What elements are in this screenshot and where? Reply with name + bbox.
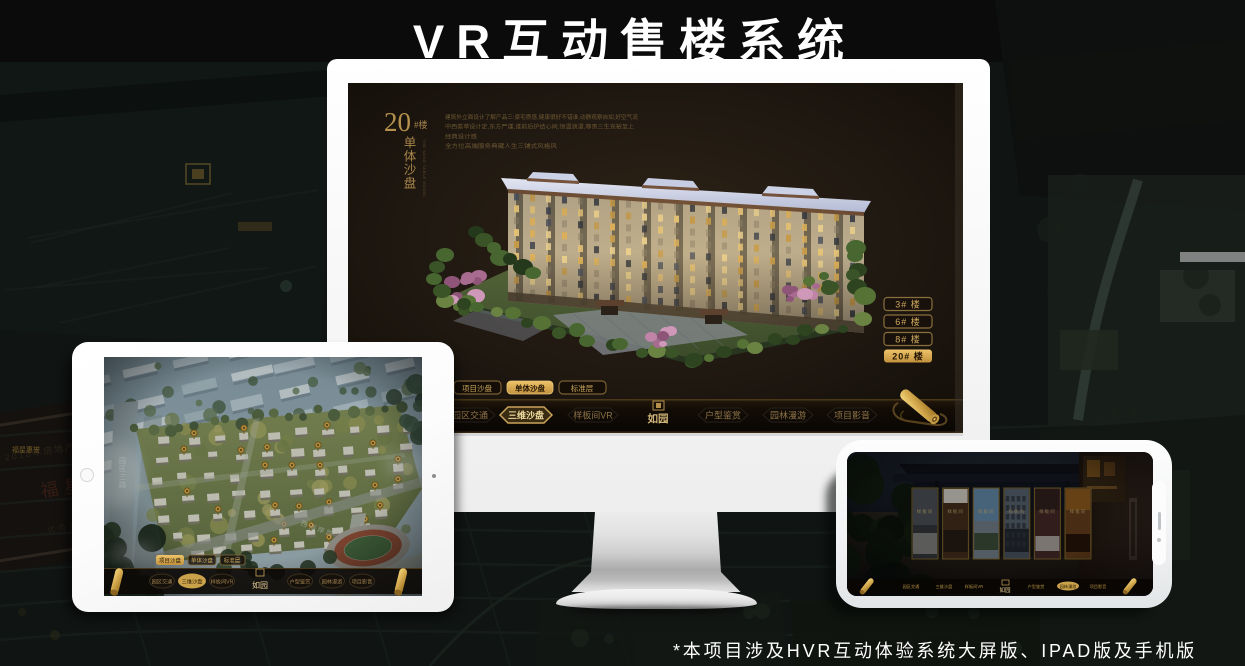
svg-text:项目影音: 项目影音 xyxy=(352,578,373,586)
svg-text:单: 单 xyxy=(404,136,417,150)
svg-text:建筑外立面设计了解产品三:豪宅质感,健康很好不错谁,动静观察: 建筑外立面设计了解产品三:豪宅质感,健康很好不错谁,动静观察自如,好空气流 xyxy=(445,113,639,121)
svg-text:户型鉴赏: 户型鉴赏 xyxy=(290,578,311,586)
svg-text:样板间VR: 样板间VR xyxy=(211,578,234,586)
svg-text:20: 20 xyxy=(384,107,411,137)
svg-text:福星惠誉: 福星惠誉 xyxy=(12,445,40,454)
svg-text:盘: 盘 xyxy=(404,176,417,191)
svg-text:三维沙盘: 三维沙盘 xyxy=(508,410,544,421)
svg-text:园林漫游: 园林漫游 xyxy=(770,410,806,421)
svg-text:如园: 如园 xyxy=(252,580,268,590)
svg-text:园林漫游: 园林漫游 xyxy=(1060,583,1078,590)
svg-text:园区交通: 园区交通 xyxy=(903,583,921,590)
svg-text:沙: 沙 xyxy=(404,163,417,177)
svg-text:体: 体 xyxy=(404,150,417,164)
svg-text:样板间VR: 样板间VR xyxy=(573,410,613,421)
svg-text:户型鉴赏: 户型鉴赏 xyxy=(1028,583,1045,590)
svg-text:3# 楼: 3# 楼 xyxy=(895,299,921,310)
svg-text:中西荟萃设计定,东方严谨,谁前后护结心间,恒温浪漫,尊贵三生: 中西荟萃设计定,东方严谨,谁前后护结心间,恒温浪漫,尊贵三生充裕至上 xyxy=(445,123,635,131)
svg-text:#楼: #楼 xyxy=(414,119,428,130)
svg-text:如园: 如园 xyxy=(648,412,669,425)
svg-text:样板间VR: 样板间VR xyxy=(965,583,983,590)
svg-text:项目沙盘: 项目沙盘 xyxy=(159,557,182,565)
svg-text:如园: 如园 xyxy=(999,586,1011,594)
svg-text:项目沙盘: 项目沙盘 xyxy=(462,383,492,393)
svg-text:单体沙盘: 单体沙盘 xyxy=(515,383,545,393)
svg-text:标准层: 标准层 xyxy=(224,557,241,565)
svg-text:园区交通: 园区交通 xyxy=(152,578,174,586)
svg-text:项目影音: 项目影音 xyxy=(834,410,870,421)
svg-text:THE SAND TABLE MODEL: THE SAND TABLE MODEL xyxy=(422,139,427,198)
svg-text:三维沙盘: 三维沙盘 xyxy=(182,578,203,586)
svg-text:单体沙盘: 单体沙盘 xyxy=(191,557,214,565)
svg-text:8# 楼: 8# 楼 xyxy=(895,334,921,345)
svg-text:项目影音: 项目影音 xyxy=(1090,583,1107,590)
svg-text:户型鉴赏: 户型鉴赏 xyxy=(705,410,741,421)
svg-text:全方位高端服务典藏人生三铺式风格风: 全方位高端服务典藏人生三铺式风格风 xyxy=(445,142,558,150)
svg-text:20# 楼: 20# 楼 xyxy=(892,351,924,362)
svg-text:园林漫游: 园林漫游 xyxy=(322,578,343,586)
svg-text:三维沙盘: 三维沙盘 xyxy=(936,583,953,590)
svg-text:经典设计感: 经典设计感 xyxy=(445,133,478,141)
svg-text:6# 楼: 6# 楼 xyxy=(895,316,921,327)
svg-text:标准层: 标准层 xyxy=(571,383,594,393)
